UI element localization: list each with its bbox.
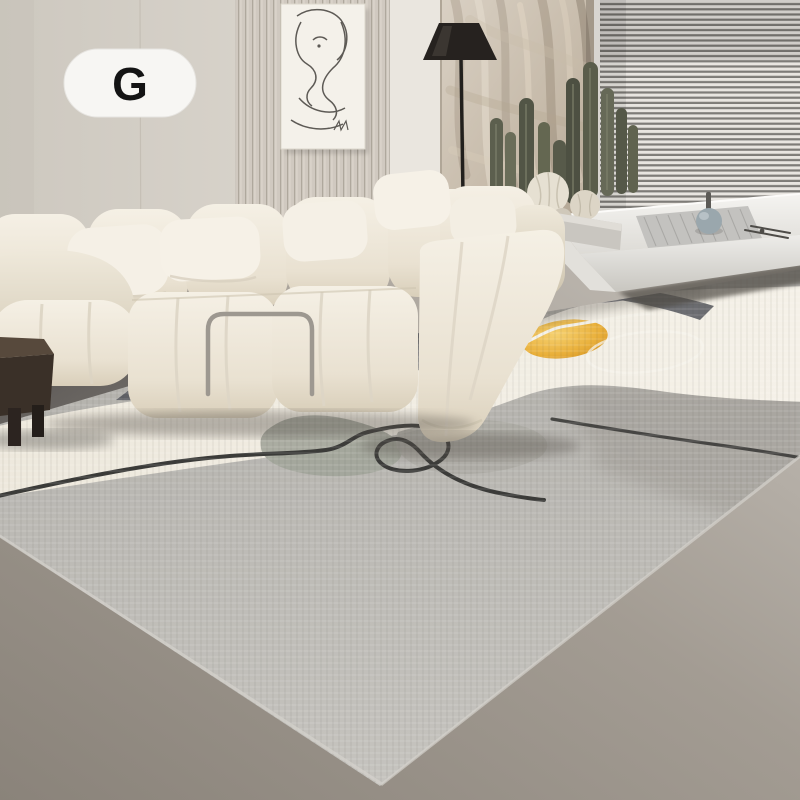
blinds-top-shade bbox=[600, 0, 800, 60]
canvas bbox=[281, 4, 365, 149]
table-front bbox=[0, 354, 54, 416]
sofa-seat-cushions bbox=[128, 286, 418, 418]
vase-stem bbox=[706, 192, 711, 210]
table-leg bbox=[32, 405, 44, 437]
lamp-pole bbox=[461, 58, 463, 196]
sofa-shadow bbox=[45, 411, 475, 437]
variant-label-badge: G bbox=[64, 49, 196, 117]
table-leg bbox=[8, 408, 21, 446]
product-photo-living-room-rug: G bbox=[0, 0, 800, 800]
abstract-line-art-canvas bbox=[281, 4, 369, 154]
scene-canvas: G bbox=[0, 0, 800, 800]
chaise-shadow bbox=[360, 433, 580, 459]
badge-letter: G bbox=[112, 58, 148, 110]
